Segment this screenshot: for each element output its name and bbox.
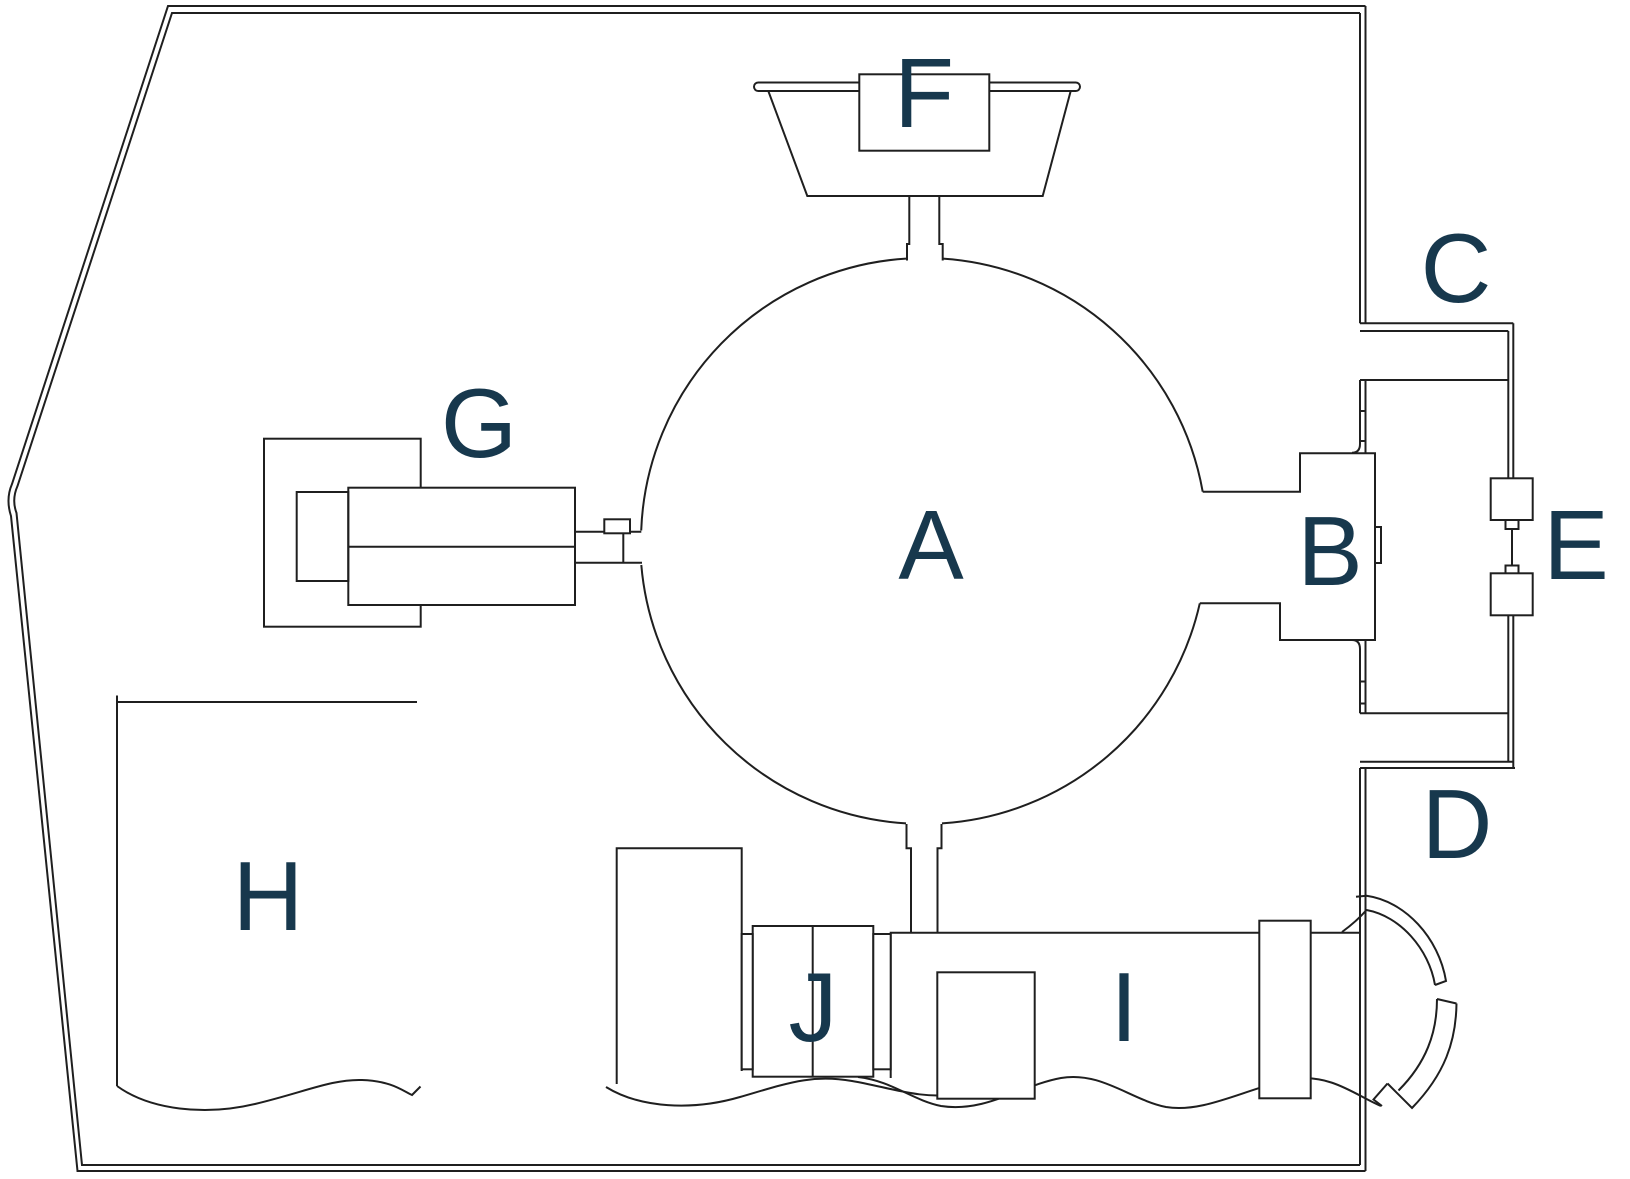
tank-i-inner-box xyxy=(937,972,1034,1098)
label-hopper-f: F xyxy=(894,44,954,142)
duct-c xyxy=(1360,323,1513,380)
tall-tank-walls xyxy=(617,848,742,1084)
label-duct-d: D xyxy=(1422,775,1493,873)
wall-outer xyxy=(8,6,1365,1171)
wall-inner xyxy=(14,13,1360,1165)
equipment-floorplan-diagram: A B C D E F G H I J xyxy=(0,0,1630,1179)
machine-g-connector xyxy=(575,532,642,563)
label-valve-e: E xyxy=(1543,496,1608,594)
pipe-e xyxy=(1508,323,1513,768)
airlock-b-stub xyxy=(1375,527,1381,563)
vessel-a-arc-bottomright xyxy=(942,603,1200,823)
bottom-units xyxy=(606,824,1381,1108)
label-airlock-b: B xyxy=(1297,502,1362,600)
valve-coupling-top xyxy=(1506,520,1519,529)
label-machine-g: G xyxy=(441,374,517,472)
pump-j-flange-left xyxy=(742,934,753,1069)
door-arc-lower-segment xyxy=(1374,999,1457,1108)
tank-h-wave xyxy=(117,1080,421,1110)
label-tank-i: I xyxy=(1110,958,1137,1056)
hopper-f-neck xyxy=(907,196,943,261)
vessel-a-bottom-neck xyxy=(907,824,942,933)
pump-j-flange-right xyxy=(873,934,890,1069)
vessel-a-arc-bottomleft xyxy=(641,565,906,823)
building-outline xyxy=(8,6,1365,1171)
label-duct-c: C xyxy=(1421,219,1492,317)
door-arc-upper-segment xyxy=(1342,896,1446,985)
machine-g-connector-cap xyxy=(604,519,630,533)
label-pump-j: J xyxy=(789,958,838,1056)
vessel-a-arc-topleft xyxy=(641,259,906,531)
valve-box-bottom xyxy=(1491,573,1533,615)
vessel-a-arc-topright xyxy=(943,259,1203,492)
label-tank-h: H xyxy=(233,847,304,945)
valve-box-top xyxy=(1491,478,1533,520)
duct-d xyxy=(1360,713,1515,768)
tank-i-pillar xyxy=(1259,921,1310,1099)
machine-g-inner-block xyxy=(297,492,349,581)
label-vessel-a: A xyxy=(898,496,963,594)
